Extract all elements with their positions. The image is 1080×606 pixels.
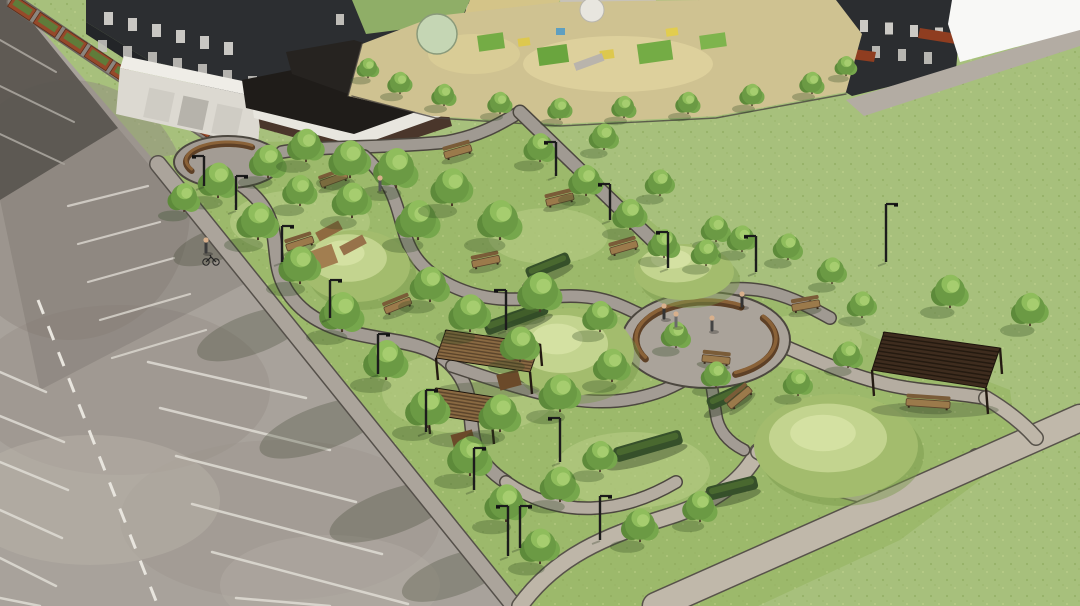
scene-root — [0, 0, 1080, 606]
dome-structure — [580, 0, 604, 22]
park-render-stage — [0, 0, 1080, 606]
gazebo-roof — [417, 14, 457, 54]
park-aerial-render — [0, 0, 1080, 606]
